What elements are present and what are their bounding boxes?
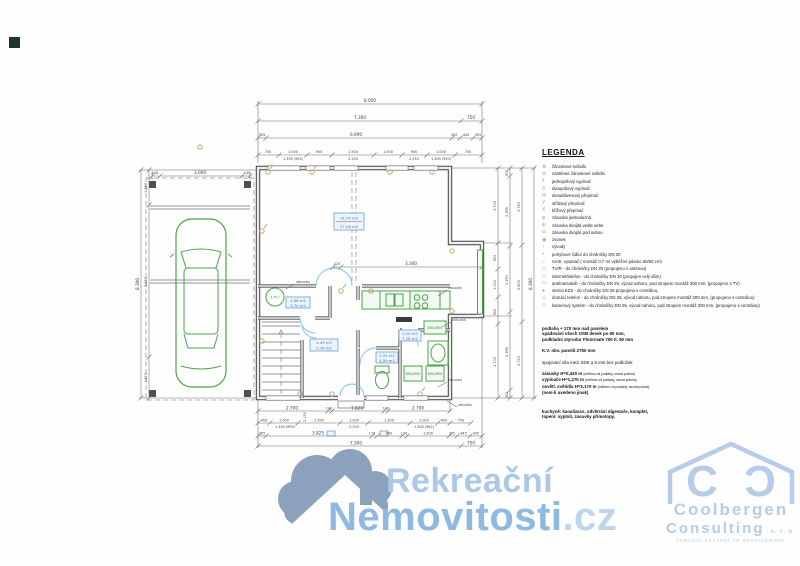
dimension-label: 445 xyxy=(460,432,466,436)
legend-title: LEGENDA xyxy=(542,148,798,157)
kitchen-unit-icon: 800/600 xyxy=(424,321,446,334)
legend-item: Υ střídavý přepínač xyxy=(542,199,798,206)
dimension-label: 750 xyxy=(265,150,271,154)
legend-item: ◇ TV/R - do chráničky DN 20 (propojeno s… xyxy=(542,265,798,272)
room-label-tech: 1,96 m2 3,70 m2 xyxy=(286,297,310,308)
dimension-label: 1.820 xyxy=(351,406,363,411)
legend-item: ● siréna EZS - do chráničky DN 26 propoj… xyxy=(542,287,798,294)
dimension-label: 1.500 xyxy=(348,150,358,154)
dimension-label: 305 xyxy=(475,133,481,137)
notes-block-floor: podlaha + 170 mm nad panelemspádování vš… xyxy=(542,326,798,342)
legend-item-label: siréna EZS - do chráničky DN 26 propojen… xyxy=(552,288,658,293)
dimension-label: 305 xyxy=(449,432,455,436)
dimension-label: 1.000 xyxy=(288,150,298,154)
dimension-label: 3.000 xyxy=(194,170,206,175)
legend-item-label: internet/telefon - do chráničky DN 20 (p… xyxy=(552,274,661,279)
dimension-label: 1.000 xyxy=(349,419,359,423)
dimension-label: 1.250 xyxy=(144,183,148,193)
legend-symbol-icon: Λ xyxy=(542,186,552,192)
legend-item: ◉ zvonek xyxy=(542,236,798,243)
dimension-label: 750 xyxy=(467,115,475,120)
dimension-label: 2.395 xyxy=(505,207,509,217)
room-area-value: 7,26 m2 xyxy=(402,336,418,341)
dimension-label: 6.690 xyxy=(350,132,362,137)
legend-symbol-icon: ◇ xyxy=(542,273,552,279)
dimension-label: 2.250 xyxy=(349,425,359,429)
dimension-label: 1.000 xyxy=(493,280,497,290)
dimension-label: 2.700 xyxy=(286,406,298,411)
room-label-wc: 1,31 m2 4,59 m2 xyxy=(376,352,398,363)
legend-symbol-icon: ⊗ xyxy=(542,164,552,170)
dimension-label: 305 xyxy=(259,133,265,137)
entrance-opening xyxy=(338,395,364,401)
dryer-icon: 600/600 xyxy=(426,366,444,381)
note-line: topení: vyplnit, zásuvky přímotopy. xyxy=(542,414,798,419)
room-label-hall: 4,43 m2 5,76 m2 xyxy=(310,339,338,351)
consulting-word: Consulting xyxy=(666,520,764,537)
consulting-legal-form: s. r. o. xyxy=(771,529,796,535)
legend-item-label: kamerový systém - do chráničky DN 25, vý… xyxy=(552,303,760,308)
legend-symbol-icon: Ψ xyxy=(542,193,552,199)
legend-item: ω zásuvka dvojitá pod sebou xyxy=(542,229,798,236)
notes-block-mounting-heights: zásuvky H=0,420 m (měřeno od podlahy, os… xyxy=(542,371,798,397)
dimension-label: 2.150 xyxy=(303,412,307,422)
dimension-label: 900 xyxy=(316,150,322,154)
callout-label: zásuvka xyxy=(458,403,472,407)
dimension-label: 2.750 xyxy=(517,356,521,366)
legend-symbol-icon: ◐ xyxy=(542,251,552,257)
dimension-label: 950 xyxy=(493,255,497,261)
dimension-label: 5.480 xyxy=(144,277,148,287)
legend-item-label: anténa/satelit - do chráničky DN 25, výv… xyxy=(552,281,740,286)
dimension-label: 1.300 (962) xyxy=(414,425,435,429)
legend-item: ◇ domácí telefon - do chráničky DN 25, v… xyxy=(542,294,798,301)
monogram-c-right: Ɔ xyxy=(744,457,776,504)
legend-item-label: zásuvka dvojitá vedle sebe xyxy=(552,223,603,228)
legend: LEGENDA ⊗ žárovkové svítidlo ⊘ nástěnné … xyxy=(542,148,798,309)
dimension-label: 2.250 xyxy=(409,157,419,161)
dimension-label: 2.700 xyxy=(493,201,497,211)
callout-label: zásuvka xyxy=(452,318,466,322)
legend-symbol-icon: ◇ xyxy=(542,266,552,272)
dimension-label: 305 xyxy=(451,133,457,137)
dimension-label: 750 xyxy=(465,150,471,154)
dimension-label: 1.300 (950) xyxy=(283,157,304,161)
legend-item-label: zvonek xyxy=(552,237,566,242)
dimension-label: 170 xyxy=(401,432,407,436)
kitchen-unit-label: 800/600 xyxy=(428,326,444,330)
dimension-label: 8.300 xyxy=(135,278,140,290)
bay-french-window xyxy=(478,250,483,314)
washer-label: 600/600 xyxy=(406,372,422,376)
legend-symbol-icon: ⊘ xyxy=(542,171,552,177)
legend-symbol-icon: Χ xyxy=(542,207,552,213)
dimension-label: 900 xyxy=(386,432,392,436)
dimension-label: 1.570 xyxy=(144,373,148,383)
notes-block-kitchen: kuchyně: kanalizace, odvětrání digestoře… xyxy=(542,409,798,420)
room-area-value: 5,76 m2 xyxy=(316,346,332,351)
room-area-value: 4,59 m2 xyxy=(379,358,395,363)
dim-note-box xyxy=(327,431,335,436)
legend-item-label: dvoupólový vypínač xyxy=(552,186,590,191)
legend-item-label: zásuvka dvojitá pod sebou xyxy=(552,230,603,235)
legend-symbol-icon: ψ xyxy=(542,222,552,228)
legend-symbol-icon: ◉ xyxy=(542,237,552,243)
legend-item: ○ centr. vysavač ( montáž 0,7 m/ výběžné… xyxy=(542,258,798,265)
dimension-label: 750 xyxy=(458,419,464,423)
legend-symbol-icon: ◇ xyxy=(542,295,552,301)
dryer-label: 600/600 xyxy=(428,372,444,376)
legend-item: Λ dvoupólový vypínač xyxy=(542,185,798,192)
dimension-label: 140 xyxy=(326,407,332,411)
washer-icon: 600/600 xyxy=(404,366,422,381)
legend-item: φ zásuvka jednoduchá xyxy=(542,214,798,221)
callout-label: zásuvka xyxy=(296,280,310,284)
consulting-logo: C Ɔ Coolbergen Consulting s. r. o. lowco… xyxy=(662,438,800,544)
callout-label: zásuvka xyxy=(448,378,462,382)
dimension-label: 900 xyxy=(411,150,417,154)
dimension-label: 1.000 xyxy=(419,419,429,423)
legend-item: λ jednopólový vypínač xyxy=(542,178,798,185)
dimension-label: 140 xyxy=(383,407,389,411)
dimension-label: 2.750 xyxy=(517,202,521,212)
legend-item-label: křížový přepínač xyxy=(552,208,584,213)
dimension-label: 3.825 xyxy=(312,431,324,436)
legend-symbol-icon: φ xyxy=(542,215,552,221)
dimension-label: 2.250 xyxy=(348,157,358,161)
callout-label: zásuvka xyxy=(448,286,462,290)
legend-symbol-icon: ↑ xyxy=(542,244,552,250)
legend-symbol-icon: Υ xyxy=(542,200,552,206)
legend-item: ψ zásuvka dvojitá vedle sebe xyxy=(542,221,798,228)
dimension-label: 220 xyxy=(334,262,340,266)
boiler-label: 175 l xyxy=(270,296,279,300)
legend-item-label: pohybové čidlo/ do chráničky DN 20 xyxy=(552,252,621,257)
dimension-label: 3.300 xyxy=(405,261,417,266)
dimension-label: 305 xyxy=(505,392,509,398)
consulting-name-2: Consulting s. r. o. xyxy=(662,520,800,537)
legend-symbol-icon: ○ xyxy=(542,259,552,265)
dimension-label: 2.700 xyxy=(493,357,497,367)
dimension-label: 750 xyxy=(467,441,475,446)
dimension-label: 140 xyxy=(244,171,250,175)
room-area-value: 14,74 m2 xyxy=(340,216,359,221)
carport xyxy=(146,178,254,400)
dimension-label: 2.395 xyxy=(505,347,509,357)
vanity-basin-icon xyxy=(428,341,448,365)
house-outline-monogram-icon: C Ɔ xyxy=(662,438,800,504)
dimension-label: 305 xyxy=(259,432,265,436)
legend-item: Χ křížový přepínač xyxy=(542,207,798,214)
legend-symbol-icon: ● xyxy=(542,288,552,294)
watermark-word-2: Nemovitosti.cz xyxy=(328,495,617,540)
dimension-label: 450 xyxy=(261,419,267,423)
legend-item-label: jednopólový vypínač xyxy=(552,179,591,184)
dimension-label: 305 xyxy=(505,170,509,176)
dimension-label: 1.500 xyxy=(314,419,324,423)
dimension-label: 1.300 (950) xyxy=(275,425,296,429)
legend-item-label: zásuvka jednoduchá xyxy=(552,215,591,220)
monogram-c-left: C xyxy=(686,457,718,504)
consulting-name: Coolbergen xyxy=(662,500,800,520)
room-area-value: 27,26 m2 xyxy=(340,224,359,229)
legend-item: Ψ dvouklávesový přepínač xyxy=(542,192,798,199)
construction-notes: podlaha + 170 mm nad panelemspádování vš… xyxy=(542,326,798,419)
dimension-label: 8.050 xyxy=(364,98,376,103)
legend-symbol-icon: ◇ xyxy=(542,302,552,308)
watermark-tld: .cz xyxy=(562,495,617,539)
toilet-icon xyxy=(375,366,389,389)
dimension-label: 170 xyxy=(369,432,375,436)
dimension-label: 2.800 xyxy=(517,280,521,290)
legend-symbol-icon: λ xyxy=(542,178,552,184)
room-label-bath: 3,10 m2 7,26 m2 xyxy=(399,330,421,341)
boiler-icon: 175 l xyxy=(266,288,284,306)
legend-symbol-icon: ω xyxy=(542,229,552,235)
dimension-label: 1.000 xyxy=(383,150,393,154)
dimension-label: 450 xyxy=(441,419,447,423)
dimension-label: 1.500 xyxy=(423,432,433,436)
legend-items: ⊗ žárovkové svítidlo ⊘ nástěnné žárovkov… xyxy=(542,163,798,309)
room-area-value: 4,43 m2 xyxy=(316,340,332,345)
dimension-label: 140 xyxy=(152,171,158,175)
legend-item-label: nástěnné žárovkové svítidlo xyxy=(552,171,605,176)
legend-item: ◇ anténa/satelit - do chráničky DN 25, v… xyxy=(542,280,798,287)
legend-item-label: domácí telefon - do chráničky DN 25, výv… xyxy=(552,295,755,300)
dimension-label: 2.700 xyxy=(412,406,424,411)
car-top-view xyxy=(170,219,232,387)
room-area-value: 3,70 m2 xyxy=(290,303,306,308)
legend-item-label: dvouklávesový přepínač xyxy=(552,193,598,198)
consulting-tagline: lowcost concept re development xyxy=(662,538,800,544)
legend-item-label: střídavý přepínač xyxy=(552,201,585,206)
dimension-label: 8.300 xyxy=(528,278,533,290)
room-label-living: 14,74 m2 27,26 m2 xyxy=(334,213,364,230)
dimension-label: 950 xyxy=(493,309,497,315)
dimension-label: 7.300 xyxy=(354,115,366,120)
legend-item-label: centr. vysavač ( montáž 0,7 m/ výběžné p… xyxy=(552,259,662,264)
legend-item-label: vývody xyxy=(552,244,565,249)
legend-item: ⊘ nástěnné žárovkové svítidlo xyxy=(542,170,798,177)
legend-item: ⊗ žárovkové svítidlo xyxy=(542,163,798,170)
legend-item: ◇ internet/telefon - do chráničky DN 20 … xyxy=(542,272,798,279)
staircase xyxy=(262,322,300,394)
legend-item: ◐ pohybové čidlo/ do chráničky DN 20 xyxy=(542,251,798,258)
vent-duct xyxy=(396,317,412,322)
drawing-sheet: 175 l 800/600 600/600 xyxy=(0,0,800,566)
dimension-label: 445 xyxy=(463,133,469,137)
dimension-label: 2.290 xyxy=(505,275,509,285)
dimension-label: 1.000 xyxy=(436,150,446,154)
dimension-label: 305 xyxy=(473,432,479,436)
dimension-label: 1.300 (950) xyxy=(431,157,452,161)
watermark-brand: Nemovitosti xyxy=(328,495,562,539)
kitchen-counter xyxy=(362,291,450,309)
dimension-label: 1.000 xyxy=(279,419,289,423)
electrical-symbols xyxy=(198,145,454,396)
legend-item: ◇ kamerový systém - do chráničky DN 25, … xyxy=(542,302,798,309)
legend-symbol-icon: ◇ xyxy=(542,280,552,286)
legend-item: ↑ vývody xyxy=(542,243,798,250)
legend-item-label: žárovkové svítidlo xyxy=(552,164,586,169)
dimension-label: 1.500 xyxy=(384,419,394,423)
legend-item-label: TV/R - do chráničky DN 20 (propojeno s a… xyxy=(552,266,646,271)
